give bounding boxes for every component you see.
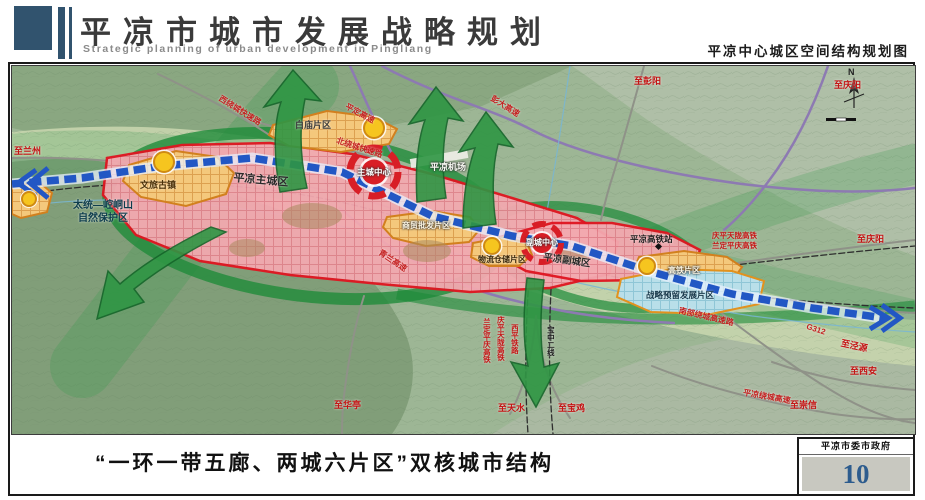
agency-label: 平凉市委市政府 — [799, 439, 913, 455]
page-number-box: 平凉市委市政府 10 — [797, 437, 915, 496]
map-sheet-title: 平凉中心城区空间结构规划图 — [708, 40, 910, 60]
map-canvas: 至兰州太统—崆峒山 自然保护区文旅古镇平凉主城区主城中心白庙片区西绕城快速路平定… — [11, 65, 916, 435]
header-accent-bar-thin — [69, 7, 72, 59]
structure-caption: “一环一带五廊、两城六片区”双核城市结构 — [95, 447, 554, 477]
planning-poster-page: 平凉市城市发展战略规划 Strategic planning of urban … — [0, 0, 925, 500]
page-number: 10 — [802, 457, 910, 491]
page-subtitle-en: Strategic planning of urban development … — [83, 43, 433, 55]
header-accent-bar — [58, 7, 65, 59]
header-accent-square — [14, 6, 52, 50]
compass-north-label: N — [848, 67, 855, 77]
map-graphic — [12, 66, 915, 434]
